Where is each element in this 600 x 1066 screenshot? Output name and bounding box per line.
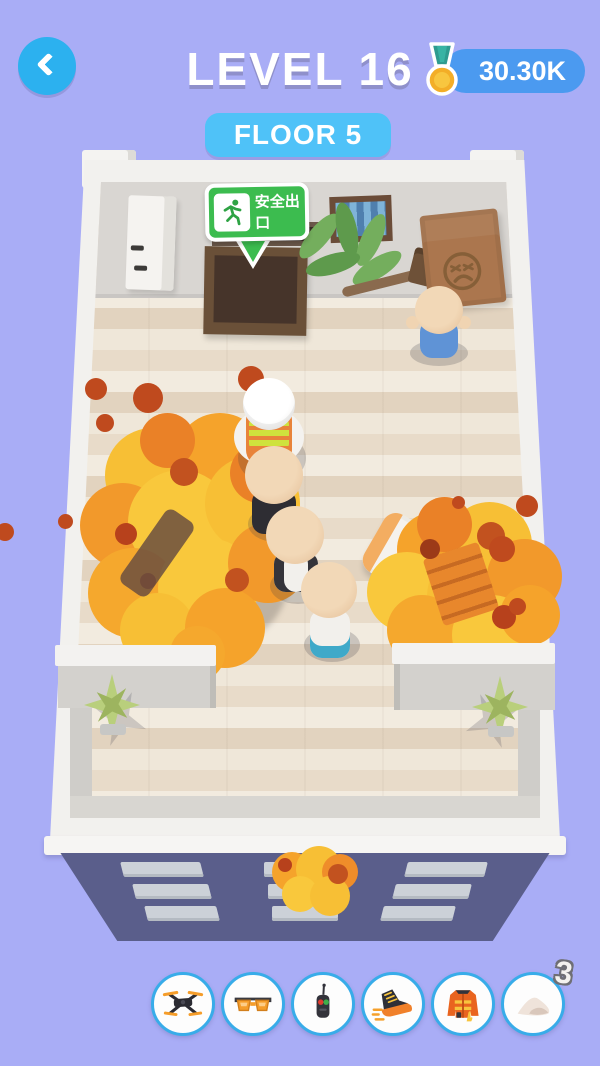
ember-dot — [516, 495, 538, 517]
ember-dot — [509, 598, 526, 615]
drone-icon — [161, 982, 205, 1026]
ember-dot — [452, 496, 465, 509]
exit-sign-text: 安全出口 — [255, 190, 301, 233]
interior-wall-right — [392, 643, 555, 664]
score-badge: 30.30K — [444, 49, 585, 93]
extinguish-powder-icon — [510, 981, 556, 1027]
bottom-wall-inner-face — [70, 796, 540, 818]
item-button-drone[interactable] — [151, 972, 215, 1036]
score-value: 30.30K — [479, 56, 566, 87]
civilian-follower — [296, 562, 366, 667]
game-scene[interactable]: 安全出口 — [0, 0, 600, 1066]
floor-label: FLOOR 5 — [234, 119, 362, 151]
fridge — [125, 195, 176, 291]
facade-window-fire — [266, 846, 358, 918]
civilian-top-right — [404, 286, 474, 366]
fire-right — [362, 497, 537, 657]
ember-dot — [489, 536, 515, 562]
item-button-safety-glasses[interactable] — [221, 972, 285, 1036]
floor-badge: FLOOR 5 — [205, 113, 391, 157]
item-button-remote-control[interactable] — [291, 972, 355, 1036]
exit-sign-tail — [241, 241, 265, 262]
running-man-exit-icon — [214, 193, 251, 232]
speed-sneaker-icon — [370, 981, 416, 1027]
exit-sign: 安全出口 — [205, 182, 310, 242]
item-button-speed-sneaker[interactable] — [361, 972, 425, 1036]
medal-icon — [421, 41, 463, 99]
safety-glasses-icon — [231, 982, 275, 1026]
item-count-badge: 3 — [552, 954, 574, 992]
item-button-fire-jacket[interactable] — [431, 972, 495, 1036]
ember-dot — [133, 383, 163, 413]
remote-control-icon — [301, 982, 345, 1026]
ember-dot — [58, 514, 73, 529]
interior-wall-left — [55, 645, 216, 666]
fire-jacket-icon — [441, 982, 485, 1026]
ember-dot — [96, 414, 114, 432]
ember-dot — [0, 523, 14, 541]
ember-dot — [85, 378, 107, 400]
potted-plant-left — [84, 674, 142, 736]
item-button-extinguish-powder[interactable]: 3 — [501, 972, 565, 1036]
potted-plant-right — [472, 676, 530, 738]
